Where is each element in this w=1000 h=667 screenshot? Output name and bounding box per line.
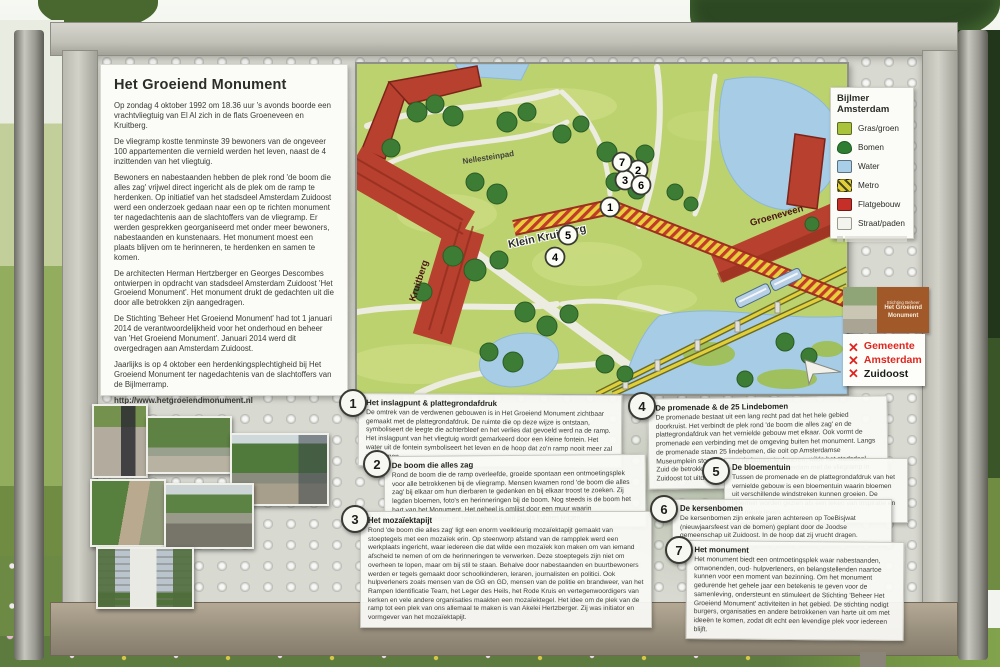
legend-item-water: Water (837, 157, 907, 176)
svg-text:3: 3 (622, 175, 628, 187)
legend-title: Bijlmer Amsterdam (837, 93, 907, 115)
stichting-photo (843, 287, 877, 333)
marker-badge-5: 5 (702, 457, 730, 485)
marker-badge-6: 6 (650, 495, 678, 523)
info-paragraph: De vliegramp kostte tenminste 39 bewoner… (114, 137, 334, 167)
info-paragraph: Op zondag 4 oktober 1992 om 18.36 uur 's… (114, 101, 334, 131)
section-body: De kersenbomen zijn enkele jaren achtere… (680, 515, 884, 541)
marker-badge-2: 2 (363, 450, 391, 478)
legend-item-flat: Flatgebouw (837, 195, 907, 214)
section-card-3: Het mozaïektapijt Rond 'de boom die alle… (360, 511, 652, 628)
svg-text:1: 1 (607, 202, 613, 214)
metro-swatch-icon (837, 179, 852, 192)
gemeente-logo: ✕ ✕ ✕ Gemeente Amsterdam Zuidoost (843, 334, 925, 386)
signpost-right (958, 30, 988, 660)
section-title: De promenade & de 25 Lindebomen (655, 400, 879, 412)
legend-item-street: Straat/paden (837, 214, 907, 233)
section-card-7: Het monument Het monument biedt een ontm… (686, 540, 905, 641)
grass-swatch-icon (837, 122, 852, 135)
stichting-card: Stichting Beheer Het Groeiend Monument (843, 287, 929, 333)
flat-swatch-icon (837, 198, 852, 211)
svg-text:5: 5 (565, 230, 571, 242)
section-body: Rond 'de boom die alles zag' ligt een en… (368, 527, 644, 623)
section-body: Het monument biedt een ontmoetingsplek w… (694, 556, 897, 636)
sign-title: Het Groeiend Monument (114, 77, 334, 93)
amsterdam-crosses-icon: ✕ ✕ ✕ (848, 341, 859, 380)
water-swatch-icon (837, 160, 852, 173)
signpost-left (14, 30, 44, 660)
street-swatch-icon (837, 217, 852, 230)
marker-badge-1: 1 (339, 389, 367, 417)
legend-footnote (837, 236, 907, 242)
section-title: Het mozaïektapijt (368, 516, 644, 525)
section-title: De kersenbomen (680, 504, 884, 513)
info-paragraph: Jaarlijks is op 4 oktober een herdenking… (114, 360, 334, 390)
frame-beam-top (50, 22, 958, 56)
svg-text:7: 7 (619, 157, 625, 169)
info-paragraph: De Stichting 'Beheer Het Groeiend Monume… (114, 314, 334, 354)
photo-monument-mosaic-wall (92, 404, 148, 478)
photo-trees-over-mosaic (146, 416, 232, 474)
photo-promenade-wall (164, 483, 254, 549)
section-title: Het inslagpunt & plattegrondafdruk (366, 398, 614, 409)
info-paragraph: De architecten Herman Hertzberger en Geo… (114, 269, 334, 309)
svg-text:4: 4 (552, 252, 559, 264)
stichting-label: Stichting Beheer Het Groeiend Monument (877, 287, 929, 333)
sign-leg (860, 652, 886, 667)
info-card: Het Groeiend Monument Op zondag 4 oktobe… (100, 64, 348, 396)
map-legend: Bijlmer Amsterdam Gras/groen Bomen Water… (830, 87, 914, 239)
marker-badge-4: 4 (628, 392, 656, 420)
tree-swatch-icon (837, 141, 852, 154)
section-title: De bloementuin (732, 463, 900, 472)
photo-white-flat-tower (96, 547, 194, 609)
marker-badge-3: 3 (341, 505, 369, 533)
map-image: Nellesteinpad Klein Kruitberg Kruitberg … (355, 62, 849, 396)
legend-item-metro: Metro (837, 176, 907, 195)
section-card-6: De kersenbomen De kersenbomen zijn enkel… (672, 499, 892, 546)
gemeente-text: Gemeente Amsterdam Zuidoost (864, 339, 922, 381)
marker-badge-7: 7 (665, 536, 693, 564)
info-paragraph: Bewoners en nabestaanden hebben de plek … (114, 173, 334, 263)
sign-photo: Het Groeiend Monument Op zondag 4 oktobe… (0, 0, 1000, 667)
svg-text:6: 6 (638, 180, 644, 192)
legend-item-grass: Gras/groen (837, 119, 907, 138)
section-title: Het monument (694, 545, 896, 556)
photo-wall-path (90, 479, 166, 547)
map-svg: Nellesteinpad Klein Kruitberg Kruitberg … (357, 64, 847, 394)
legend-item-trees: Bomen (837, 138, 907, 157)
section-title: De boom die alles zag (392, 459, 638, 470)
